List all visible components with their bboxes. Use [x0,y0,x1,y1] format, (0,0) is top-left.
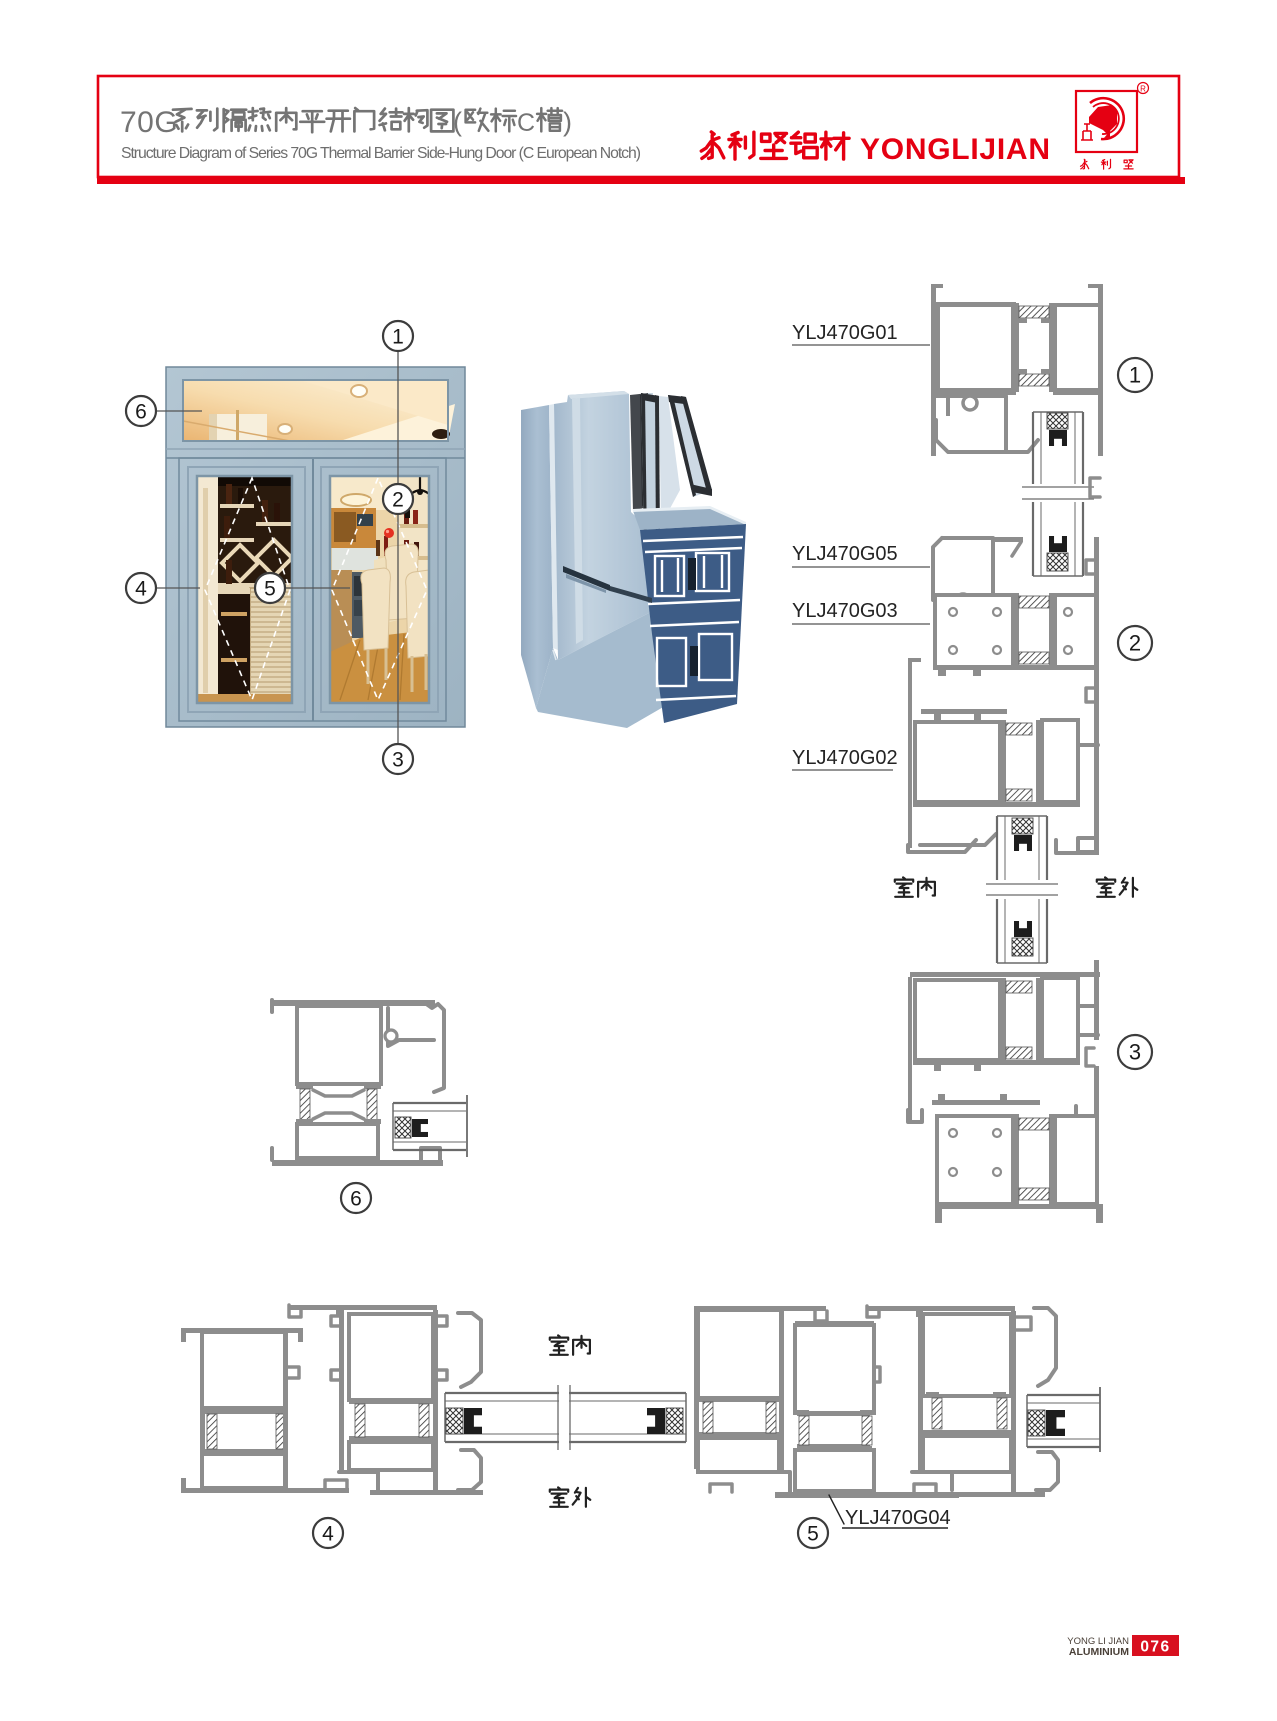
svg-text:2: 2 [1129,631,1141,656]
svg-text:6: 6 [350,1187,362,1210]
svg-text:R: R [1140,85,1146,94]
svg-text:ALUMINIUM: ALUMINIUM [1069,1646,1129,1658]
svg-text:70G: 70G [120,106,178,139]
svg-text:Structure Diagram of Series 70: Structure Diagram of Series 70G Thermal … [121,145,641,162]
svg-text:YONGLIJIAN: YONGLIJIAN [860,133,1050,166]
svg-text:5: 5 [807,1522,819,1545]
svg-text:C: C [517,109,535,137]
svg-text:1: 1 [392,325,404,348]
svg-text:(: ( [453,107,462,137]
svg-text:): ) [563,107,572,137]
svg-text:1: 1 [1129,363,1141,388]
svg-text:YLJ470G04: YLJ470G04 [845,1507,951,1529]
svg-text:5: 5 [264,577,276,600]
svg-text:YLJ470G05: YLJ470G05 [792,543,898,565]
svg-text:4: 4 [135,577,147,600]
svg-text:4: 4 [322,1522,334,1545]
svg-text:YLJ470G01: YLJ470G01 [792,322,898,344]
svg-text:6: 6 [135,400,147,423]
svg-text:YLJ470G02: YLJ470G02 [792,747,898,769]
svg-text:3: 3 [1129,1040,1141,1065]
svg-text:YLJ470G03: YLJ470G03 [792,600,898,622]
svg-text:2: 2 [392,488,404,511]
svg-text:076: 076 [1140,1639,1170,1656]
svg-text:3: 3 [392,748,404,771]
